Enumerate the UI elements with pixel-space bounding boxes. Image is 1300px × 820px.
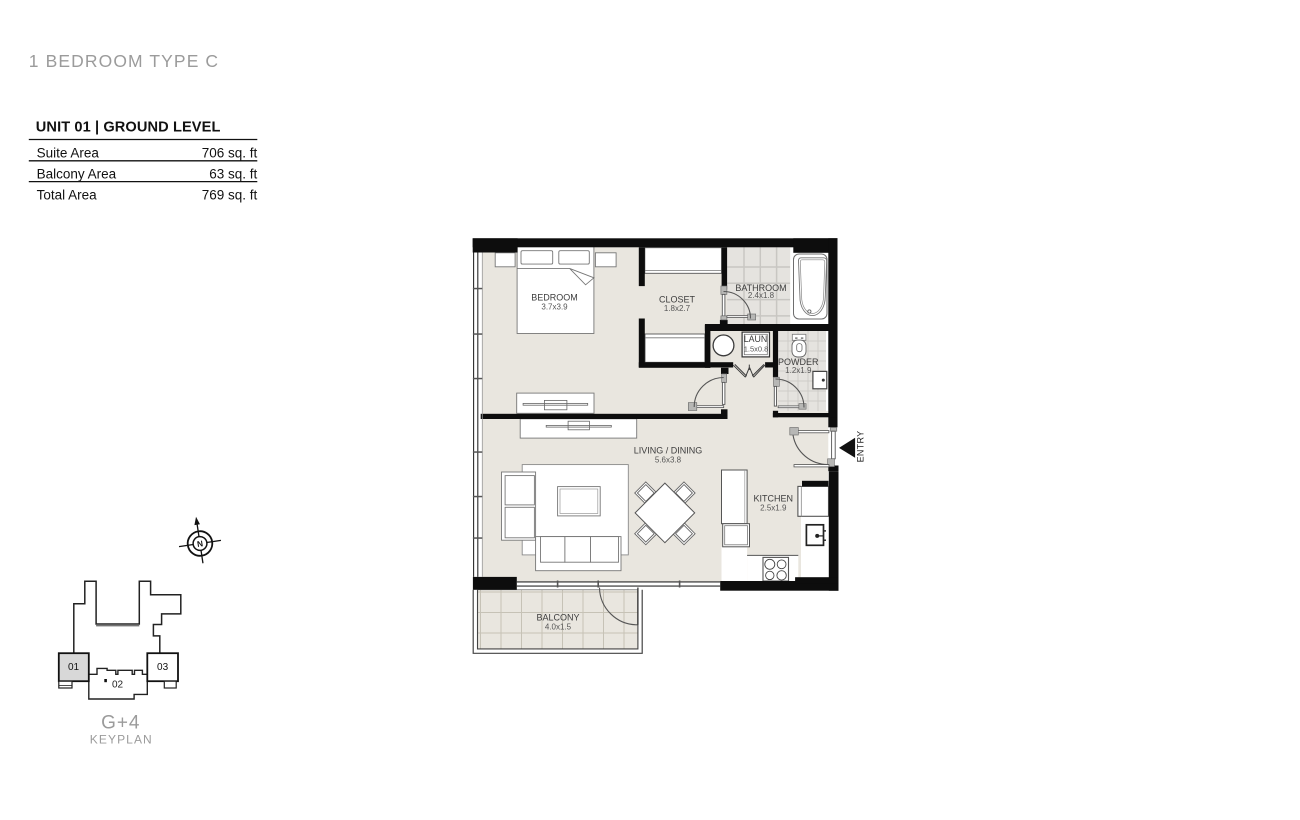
svg-text:1.2x1.9: 1.2x1.9	[785, 366, 812, 375]
svg-text:4.0x1.5: 4.0x1.5	[545, 623, 572, 632]
svg-text:LIVING / DINING: LIVING / DINING	[634, 446, 703, 456]
svg-text:03: 03	[157, 662, 169, 673]
svg-text:BALCONY: BALCONY	[536, 613, 579, 623]
svg-text:CLOSET: CLOSET	[659, 294, 696, 304]
svg-text:3.7x3.9: 3.7x3.9	[541, 302, 568, 311]
svg-text:Total Area: Total Area	[37, 188, 98, 203]
svg-text:01: 01	[68, 662, 80, 673]
svg-text:1.5x0.8: 1.5x0.8	[744, 344, 769, 353]
svg-text:5.6x3.8: 5.6x3.8	[655, 455, 682, 464]
svg-text:63 sq. ft: 63 sq. ft	[209, 167, 257, 182]
svg-text:KEYPLAN: KEYPLAN	[90, 732, 153, 746]
svg-text:LAUN: LAUN	[744, 334, 767, 344]
svg-text:ENTRY: ENTRY	[856, 431, 866, 463]
svg-text:BEDROOM: BEDROOM	[531, 293, 578, 303]
svg-text:2.5x1.9: 2.5x1.9	[760, 503, 787, 512]
svg-text:769 sq. ft: 769 sq. ft	[202, 188, 258, 203]
svg-text:UNIT 01 | GROUND LEVEL: UNIT 01 | GROUND LEVEL	[36, 119, 221, 135]
svg-text:2.4x1.8: 2.4x1.8	[748, 291, 775, 300]
svg-text:G+4: G+4	[101, 713, 140, 734]
svg-text:Balcony Area: Balcony Area	[37, 167, 117, 182]
svg-text:706 sq. ft: 706 sq. ft	[202, 146, 258, 161]
svg-text:1 BEDROOM TYPE C: 1 BEDROOM TYPE C	[29, 51, 219, 71]
svg-text:1.8x2.7: 1.8x2.7	[664, 304, 691, 313]
svg-text:Suite Area: Suite Area	[37, 146, 100, 161]
svg-text:KITCHEN: KITCHEN	[754, 494, 794, 504]
svg-text:02: 02	[112, 680, 124, 691]
